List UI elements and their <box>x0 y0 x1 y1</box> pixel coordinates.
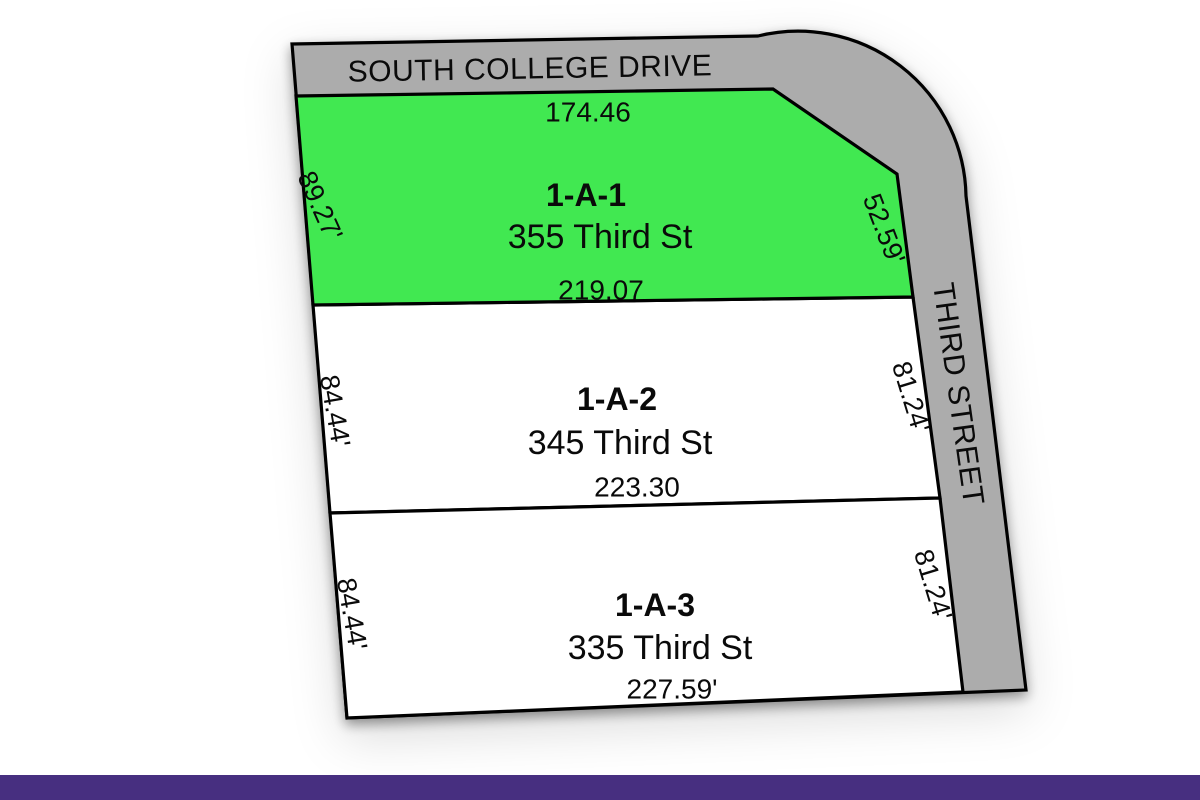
parcel-1-a-3-dim-bottom: 227.59' <box>627 674 718 705</box>
parcel-1-a-2-address: 345 Third St <box>528 424 713 462</box>
parcel-1-a-3-address: 335 Third St <box>568 629 753 667</box>
parcel-1-a-1-dim-bottom: 219.07 <box>558 275 644 306</box>
parcel-1-a-2-dim-bottom: 223.30 <box>594 472 680 503</box>
street-label-south-college-drive: SOUTH COLLEGE DRIVE <box>347 49 712 88</box>
parcel-1-a-3-id: 1-A-3 <box>615 587 695 623</box>
plat-map-canvas: SOUTH COLLEGE DRIVE THIRD STREET 1-A-1 3… <box>0 0 1200 800</box>
parcel-1-a-2-id: 1-A-2 <box>577 381 657 417</box>
parcel-1-a-1-address: 355 Third St <box>508 218 693 256</box>
plat-map-page: SOUTH COLLEGE DRIVE THIRD STREET 1-A-1 3… <box>0 0 1200 800</box>
parcel-1-a-1-dim-top: 174.46 <box>545 97 631 128</box>
parcel-1-a-1-id: 1-A-1 <box>546 177 626 213</box>
footer-accent-bar <box>0 775 1200 800</box>
